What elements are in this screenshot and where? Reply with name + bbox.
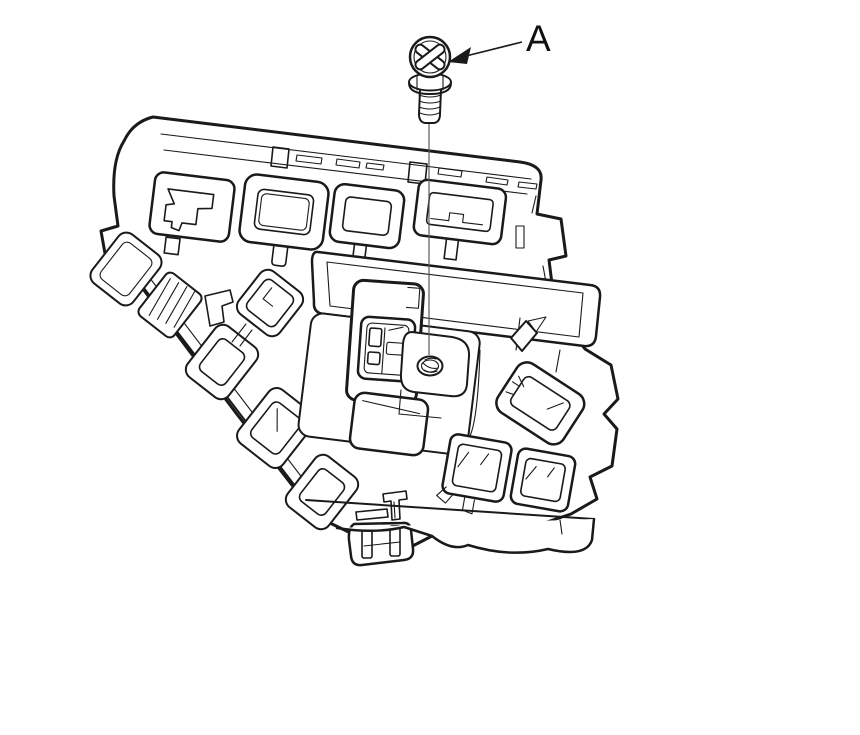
fuse-box-diagram [0,0,860,735]
mounting-screw [409,37,451,123]
technical-illustration: A [0,0,860,735]
callout-arrow [448,42,522,64]
callout-label-a: A [526,20,551,57]
bottom-socket-2 [510,447,577,512]
arrowhead [448,47,471,64]
screw-head [410,37,450,77]
